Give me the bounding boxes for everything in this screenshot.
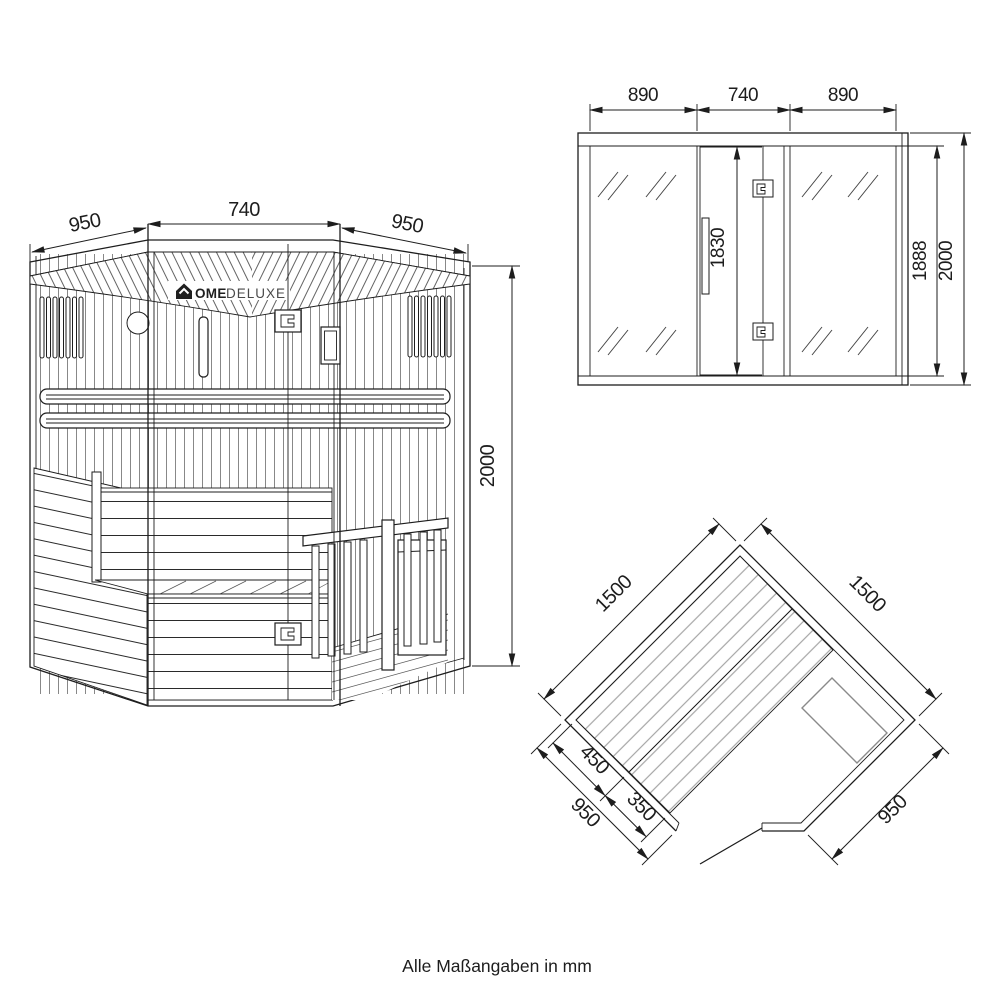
dim-back-wall-right: 1500	[844, 571, 890, 617]
door-hinge-top-elevation	[753, 180, 773, 197]
dim-side-front-right: 950	[874, 790, 912, 828]
logo-text-bold: OME	[195, 286, 227, 301]
door-handle	[199, 317, 208, 377]
open-door-leaf	[700, 828, 762, 864]
units-note: Alle Maßangaben in mm	[402, 956, 592, 976]
drawing-canvas: OME DELUXE	[0, 0, 1000, 1000]
door-hinge-top	[275, 310, 301, 332]
door-hinge-bottom	[275, 623, 301, 645]
dim-glass-height: 1888	[910, 241, 931, 281]
control-panel	[321, 327, 340, 364]
home-deluxe-logo: OME DELUXE	[168, 281, 290, 301]
dim-side-front-left: 950	[566, 794, 604, 832]
lower-bench	[148, 594, 332, 700]
dim-door-height: 1830	[708, 228, 729, 268]
upper-bench	[92, 472, 332, 582]
perspective-view: OME DELUXE	[28, 199, 520, 706]
elevation-view: 890 740 890 1830 1888 2000	[578, 85, 971, 385]
plan-view: 1500 1500 450 350 950 950	[531, 518, 949, 865]
dim-right-glass: 890	[828, 85, 858, 106]
dim-back-wall-left: 1500	[591, 571, 637, 617]
elevation-frame	[578, 133, 908, 385]
dim-elevation-total-height: 2000	[936, 241, 957, 281]
dim-door-width: 740	[228, 199, 260, 221]
dim-roof-right: 950	[389, 210, 425, 238]
left-vent-grille	[40, 297, 83, 358]
door-hinge-bottom-elevation	[753, 323, 773, 340]
dim-roof-left: 950	[67, 209, 103, 237]
dim-left-glass: 890	[628, 85, 658, 106]
dim-door: 740	[728, 85, 758, 106]
dim-total-height: 2000	[477, 444, 499, 487]
logo-text-light: DELUXE	[226, 286, 286, 301]
elevation-dimensions: 890 740 890 1830 1888 2000	[590, 85, 971, 385]
right-vent-grille	[408, 296, 451, 357]
light-fixture	[127, 312, 149, 334]
glass-marks	[598, 172, 878, 355]
technical-drawing-sheet: OME DELUXE	[0, 0, 1000, 1000]
